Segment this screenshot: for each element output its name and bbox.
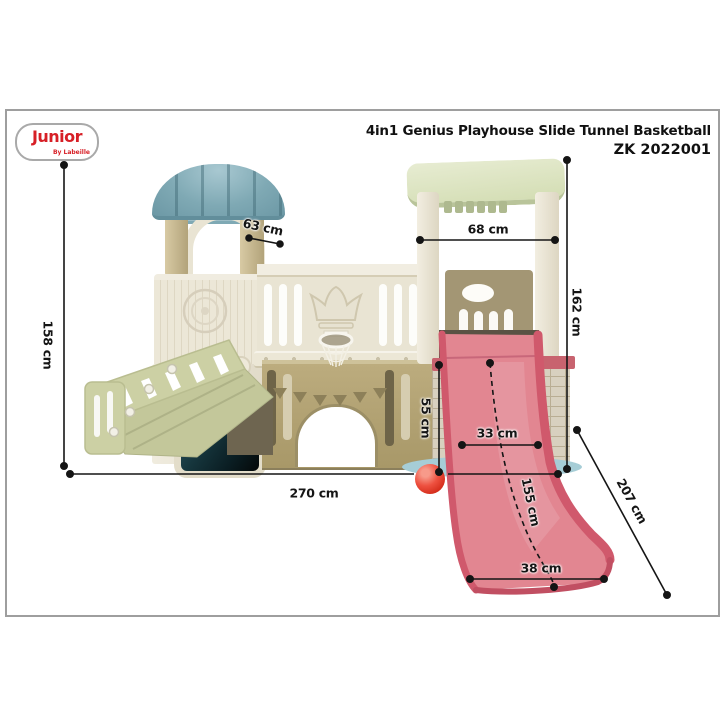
- roof-ribs: [152, 164, 285, 216]
- wall-slot: [385, 370, 394, 446]
- balustrade-rail: [257, 264, 435, 277]
- brand-logo: Junior By Labeille: [15, 123, 99, 161]
- dim-label-slide-width: 33 cm: [477, 426, 518, 441]
- balustrade-slot: [379, 284, 387, 346]
- tower-emblem: [179, 285, 231, 337]
- product-title-line1: 4in1 Genius Playhouse Slide Tunnel Baske…: [366, 123, 711, 139]
- dim-label-slide-platform-height: 55 cm: [419, 398, 434, 439]
- pennant: [353, 392, 367, 403]
- left-tower-roof-dome: [152, 164, 285, 220]
- balustrade-slot: [409, 284, 417, 346]
- panel-oval-window: [462, 284, 494, 302]
- brand-logo-text: Junior: [17, 127, 97, 146]
- dim-label-slide-exit-width: 38 cm: [521, 561, 562, 576]
- pennant: [373, 388, 387, 399]
- canopy-vents: [444, 201, 507, 213]
- basketball-ball: [415, 464, 445, 494]
- basketball-net: [322, 344, 350, 367]
- pennant: [333, 395, 347, 406]
- brand-logo-tagline: By Labeille: [53, 149, 90, 156]
- wall-slot: [401, 374, 410, 440]
- dim-label-right-tower-height: 162 cm: [570, 287, 585, 336]
- basketball-hoop-ring: [320, 333, 352, 347]
- product-title: 4in1 Genius Playhouse Slide Tunnel Baske…: [366, 123, 711, 158]
- stair-landing-post: [85, 382, 125, 454]
- product-code: ZK 2022001: [366, 142, 711, 158]
- photo-panel: Junior By Labeille 4in1 Genius Playhouse…: [5, 109, 720, 617]
- stairs: [77, 337, 317, 465]
- balustrade-slot: [394, 284, 402, 346]
- dim-label-right-tower-width: 68 cm: [468, 222, 509, 237]
- crown-emblem: [311, 287, 361, 320]
- dim-label-total-height: 158 cm: [41, 320, 56, 369]
- dim-label-total-width: 270 cm: [289, 486, 338, 501]
- dim-line-total-height: [61, 162, 67, 469]
